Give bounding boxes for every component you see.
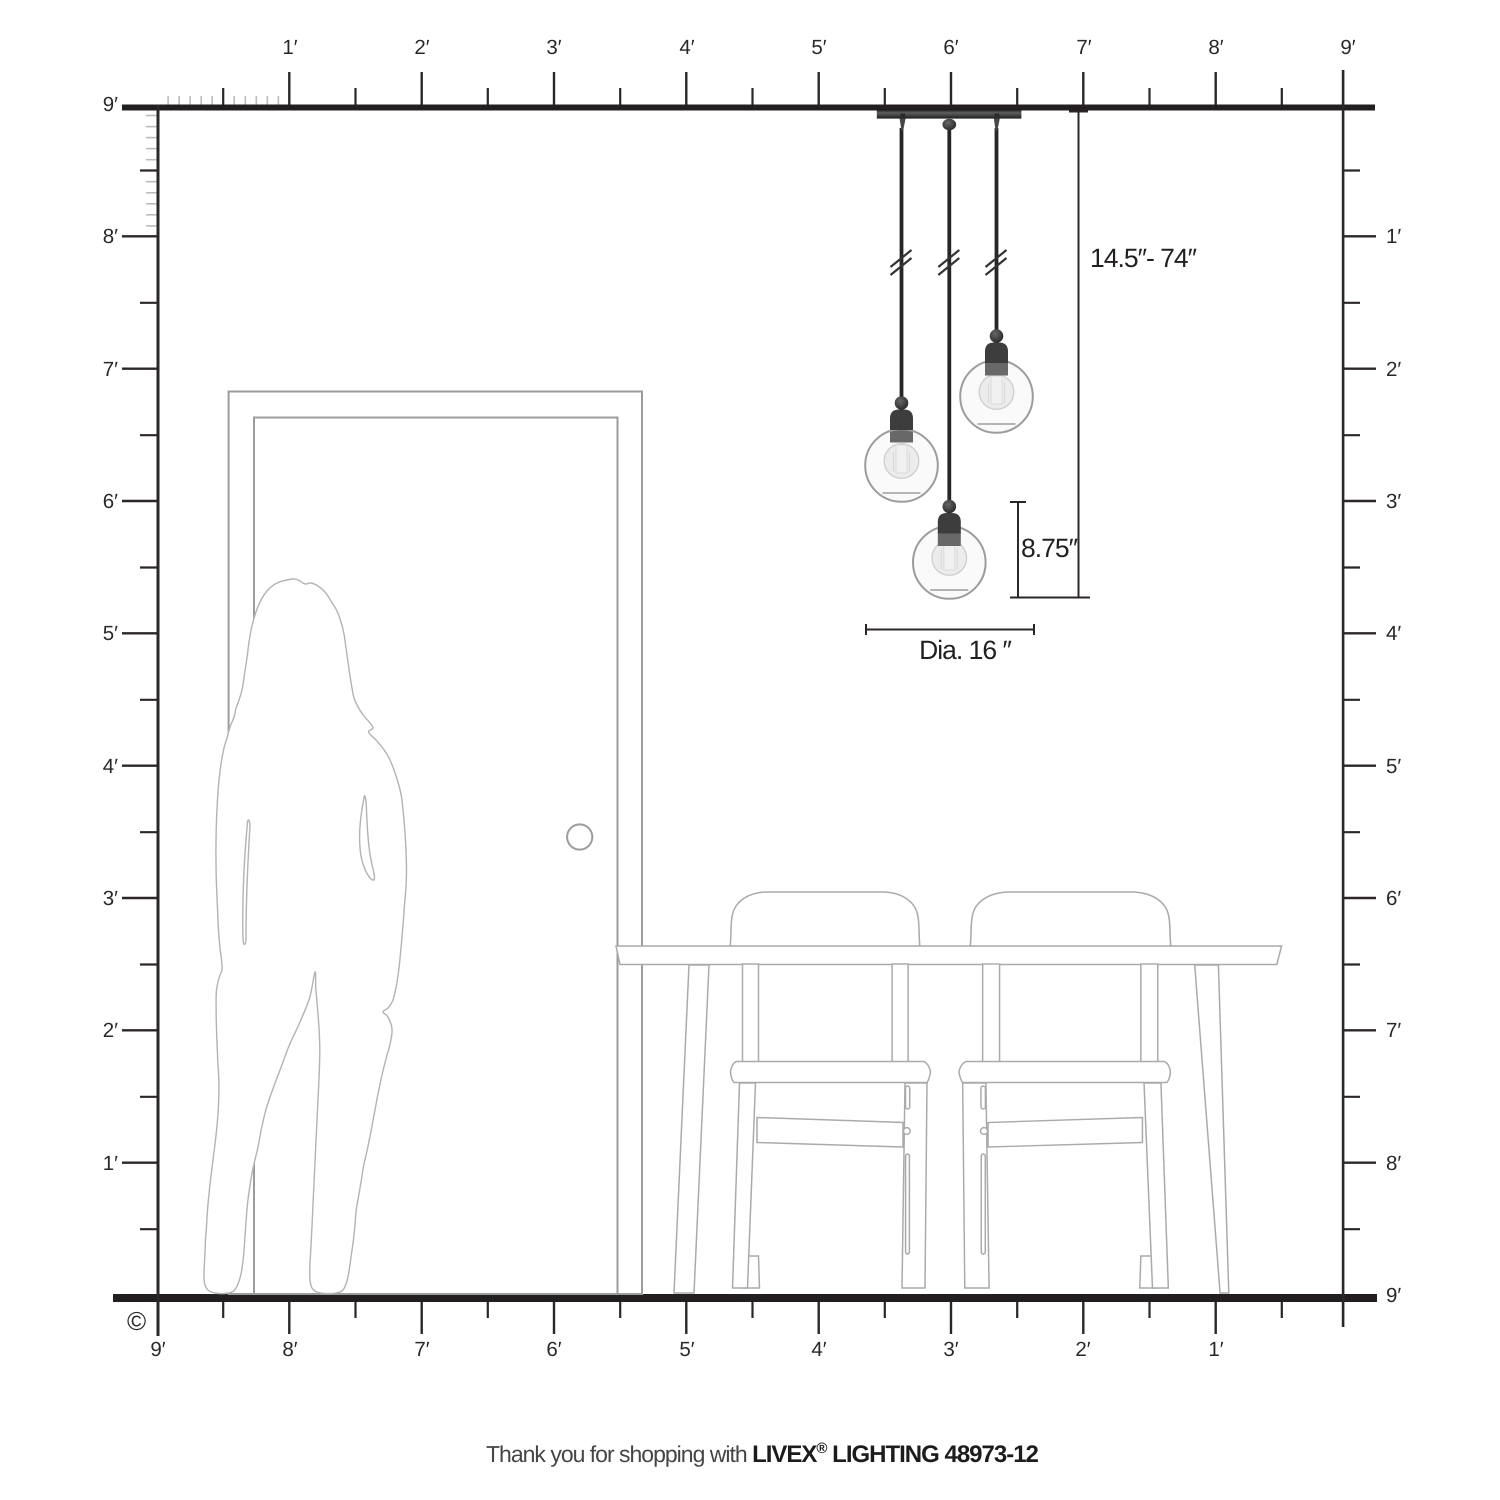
svg-text:4′: 4′ <box>103 755 118 778</box>
svg-text:3′: 3′ <box>1386 490 1401 513</box>
svg-text:9′: 9′ <box>150 1338 165 1361</box>
svg-text:8.75″: 8.75″ <box>1021 533 1078 563</box>
svg-text:9′: 9′ <box>103 93 118 116</box>
svg-text:3′: 3′ <box>546 36 561 59</box>
svg-text:5′: 5′ <box>103 622 118 645</box>
svg-text:5′: 5′ <box>679 1338 694 1361</box>
svg-text:2′: 2′ <box>103 1019 118 1042</box>
svg-text:5′: 5′ <box>1386 755 1401 778</box>
svg-text:6′: 6′ <box>103 490 118 513</box>
svg-text:5′: 5′ <box>811 36 826 59</box>
svg-text:9′: 9′ <box>1386 1284 1401 1307</box>
svg-text:Thank you for shopping with LI: Thank you for shopping with LIVEX® LIGHT… <box>486 1440 1039 1468</box>
svg-text:1′: 1′ <box>1386 225 1401 248</box>
svg-text:1′: 1′ <box>1208 1338 1223 1361</box>
svg-text:3′: 3′ <box>103 887 118 910</box>
svg-text:4′: 4′ <box>679 36 694 59</box>
svg-text:9′: 9′ <box>1340 36 1355 59</box>
svg-text:7′: 7′ <box>1386 1019 1401 1042</box>
svg-text:8′: 8′ <box>1386 1152 1401 1175</box>
svg-text:6′: 6′ <box>943 36 958 59</box>
svg-text:4′: 4′ <box>811 1338 826 1361</box>
svg-text:2′: 2′ <box>1386 358 1401 381</box>
svg-text:©: © <box>127 1306 146 1336</box>
svg-text:7′: 7′ <box>103 358 118 381</box>
svg-text:1′: 1′ <box>282 36 297 59</box>
svg-text:7′: 7′ <box>414 1338 429 1361</box>
svg-text:6′: 6′ <box>1386 887 1401 910</box>
svg-text:8′: 8′ <box>103 225 118 248</box>
svg-text:Dia. 16 ″: Dia. 16 ″ <box>919 635 1011 665</box>
svg-text:8′: 8′ <box>282 1338 297 1361</box>
svg-text:6′: 6′ <box>546 1338 561 1361</box>
svg-text:14.5″- 74″: 14.5″- 74″ <box>1090 243 1197 273</box>
svg-text:4′: 4′ <box>1386 622 1401 645</box>
svg-text:2′: 2′ <box>1075 1338 1090 1361</box>
svg-text:2′: 2′ <box>414 36 429 59</box>
svg-text:7′: 7′ <box>1076 36 1091 59</box>
svg-text:1′: 1′ <box>103 1152 118 1175</box>
svg-text:8′: 8′ <box>1208 36 1223 59</box>
svg-text:3′: 3′ <box>943 1338 958 1361</box>
